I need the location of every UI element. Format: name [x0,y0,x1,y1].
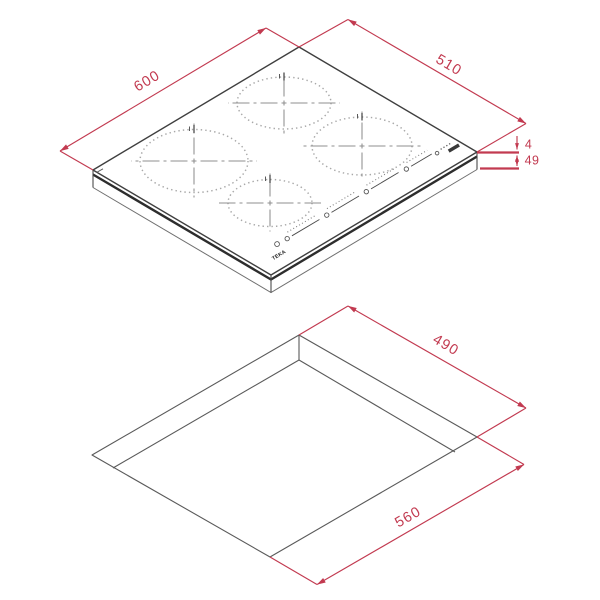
hob-width-dimension-label: 600 [131,68,163,96]
dimension-heights-4-49: 4 49 [477,136,539,169]
cutout-inner-wall-right [299,360,455,452]
glass-height-dimension-label: 4 [525,138,532,152]
installation-diagram: TEKA 600 510 4 49 [0,0,600,600]
dimension-cutout-490: 490 [299,306,526,437]
body-height-dimension-label: 49 [525,154,540,168]
cutout-isometric-view [92,335,477,557]
cutout-dimension-lines: 490 560 [270,306,526,585]
cutout-width-dimension-label: 560 [392,504,424,532]
technical-drawing: TEKA 600 510 4 49 [0,0,600,600]
dimension-cutout-560: 560 [270,437,524,585]
cutout-inner-wall-left [113,360,299,468]
hob-depth-dimension-label: 510 [433,52,465,80]
